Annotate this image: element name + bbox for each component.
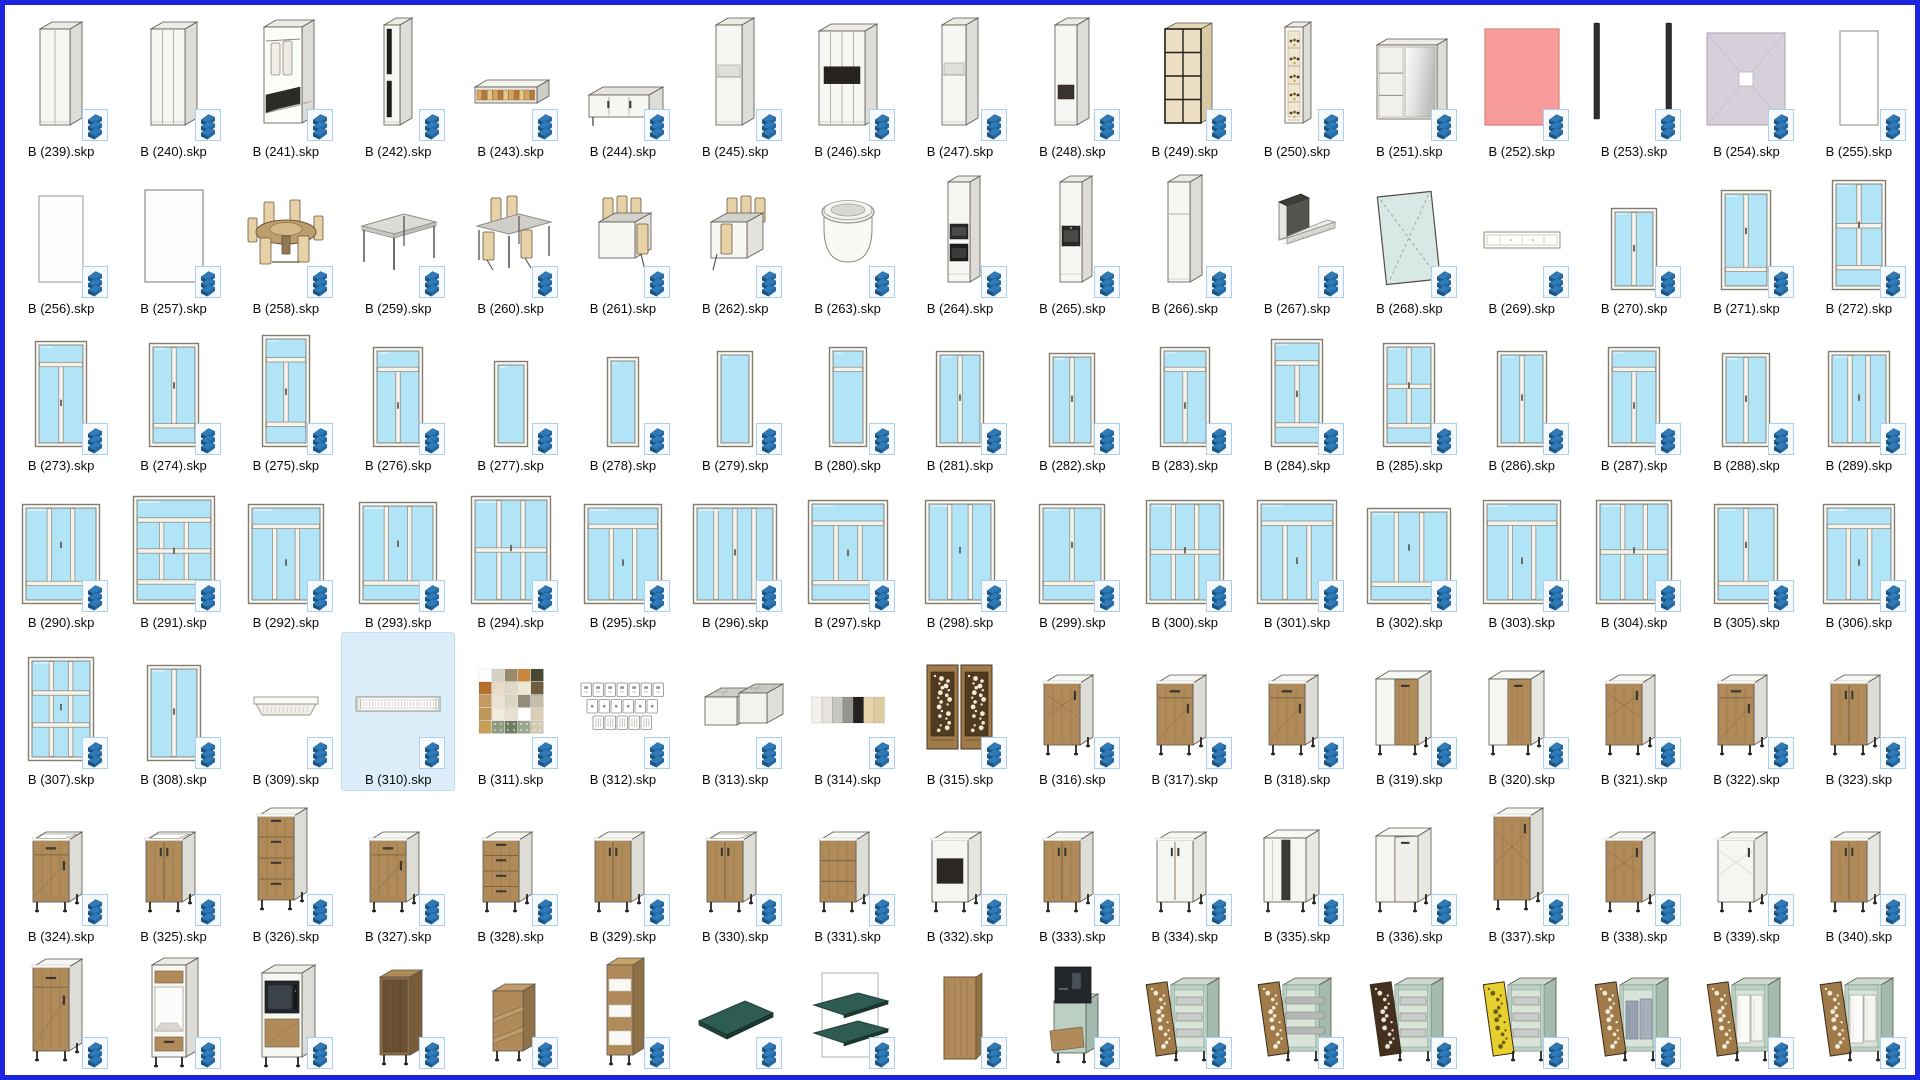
file-item[interactable]: B (262).skp — [679, 162, 791, 319]
file-item[interactable]: B (291).skp — [117, 476, 229, 633]
sketchup-badge-icon — [869, 109, 895, 141]
file-label: B (318).skp — [1241, 771, 1353, 788]
sketchup-badge-icon — [1768, 423, 1794, 455]
file-label: B (242).skp — [342, 143, 454, 160]
sketchup-badge-icon — [1880, 737, 1906, 769]
file-item[interactable]: B (253).skp — [1578, 5, 1690, 162]
file-label: B (309).skp — [230, 771, 342, 788]
file-item[interactable]: B (256).skp — [5, 162, 117, 319]
file-item[interactable]: B (321).skp — [1578, 633, 1690, 790]
file-item[interactable]: B (245).skp — [679, 5, 791, 162]
sketchup-badge-icon — [1206, 109, 1232, 141]
file-item[interactable]: B (307).skp — [5, 633, 117, 790]
sketchup-badge-icon — [644, 266, 670, 298]
sketchup-badge-icon — [195, 109, 221, 141]
file-item[interactable]: B (304).skp — [1578, 476, 1690, 633]
file-label: B (310).skp — [342, 771, 454, 788]
file-label: B (240).skp — [117, 143, 229, 160]
file-item[interactable] — [1016, 947, 1128, 1075]
file-label: B (277).skp — [454, 457, 566, 474]
sketchup-badge-icon — [1543, 423, 1569, 455]
file-item[interactable]: B (340).skp — [1803, 790, 1915, 947]
file-item[interactable]: B (259).skp — [342, 162, 454, 319]
file-item[interactable]: B (258).skp — [230, 162, 342, 319]
sketchup-badge-icon — [1543, 737, 1569, 769]
file-item[interactable]: B (283).skp — [1129, 319, 1241, 476]
sketchup-badge-icon — [1768, 109, 1794, 141]
file-label: B (335).skp — [1241, 928, 1353, 945]
sketchup-badge-icon — [82, 423, 108, 455]
file-item[interactable]: B (311).skp — [454, 633, 566, 790]
file-item[interactable]: B (314).skp — [791, 633, 903, 790]
sketchup-badge-icon — [1318, 266, 1344, 298]
sketchup-badge-icon — [1206, 1037, 1232, 1069]
file-item[interactable]: B (273).skp — [5, 319, 117, 476]
sketchup-badge-icon — [981, 1037, 1007, 1069]
file-label: B (246).skp — [791, 143, 903, 160]
grid-row: B (307).skpB (308).skpB (309).skpB (310)… — [5, 633, 1915, 790]
file-item[interactable]: B (286).skp — [1466, 319, 1578, 476]
sketchup-badge-icon — [1318, 423, 1344, 455]
sketchup-badge-icon — [1768, 737, 1794, 769]
file-item[interactable]: B (337).skp — [1466, 790, 1578, 947]
file-item[interactable]: B (318).skp — [1241, 633, 1353, 790]
file-label: B (317).skp — [1129, 771, 1241, 788]
file-item[interactable]: B (252).skp — [1466, 5, 1578, 162]
file-item[interactable]: B (239).skp — [5, 5, 117, 162]
file-item[interactable]: B (293).skp — [342, 476, 454, 633]
file-item[interactable]: B (280).skp — [791, 319, 903, 476]
file-item[interactable]: B (275).skp — [230, 319, 342, 476]
file-item[interactable]: B (246).skp — [791, 5, 903, 162]
file-item[interactable] — [5, 947, 117, 1075]
file-item[interactable]: B (298).skp — [904, 476, 1016, 633]
sketchup-badge-icon — [419, 894, 445, 926]
file-item[interactable]: B (319).skp — [1353, 633, 1465, 790]
file-item[interactable] — [1803, 947, 1915, 1075]
file-item[interactable] — [454, 947, 566, 1075]
file-label: B (263).skp — [791, 300, 903, 317]
file-item[interactable]: B (243).skp — [454, 5, 566, 162]
sketchup-badge-icon — [1655, 894, 1681, 926]
file-item[interactable]: B (303).skp — [1466, 476, 1578, 633]
file-item[interactable]: B (339).skp — [1690, 790, 1802, 947]
file-label: B (244).skp — [567, 143, 679, 160]
file-item[interactable]: B (248).skp — [1016, 5, 1128, 162]
sketchup-badge-icon — [307, 266, 333, 298]
file-item[interactable]: B (263).skp — [791, 162, 903, 319]
sketchup-badge-icon — [1880, 266, 1906, 298]
file-item[interactable]: B (320).skp — [1466, 633, 1578, 790]
sketchup-badge-icon — [1655, 423, 1681, 455]
sketchup-badge-icon — [1431, 1037, 1457, 1069]
file-label: B (290).skp — [5, 614, 117, 631]
sketchup-badge-icon — [981, 894, 1007, 926]
file-label: B (254).skp — [1690, 143, 1802, 160]
sketchup-badge-icon — [82, 109, 108, 141]
file-item[interactable]: B (268).skp — [1353, 162, 1465, 319]
sketchup-badge-icon — [644, 1037, 670, 1069]
file-item[interactable]: B (327).skp — [342, 790, 454, 947]
file-item[interactable]: B (295).skp — [567, 476, 679, 633]
sketchup-badge-icon — [644, 894, 670, 926]
file-item[interactable]: B (302).skp — [1353, 476, 1465, 633]
file-item[interactable]: B (267).skp — [1241, 162, 1353, 319]
file-label: B (340).skp — [1803, 928, 1915, 945]
sketchup-badge-icon — [1431, 737, 1457, 769]
sketchup-badge-icon — [419, 266, 445, 298]
file-item[interactable] — [679, 947, 791, 1075]
sketchup-badge-icon — [307, 109, 333, 141]
sketchup-badge-icon — [1431, 266, 1457, 298]
file-label: B (248).skp — [1016, 143, 1128, 160]
file-label: B (289).skp — [1803, 457, 1915, 474]
file-label: B (239).skp — [5, 143, 117, 160]
file-item[interactable]: B (240).skp — [117, 5, 229, 162]
file-label: B (284).skp — [1241, 457, 1353, 474]
file-label: B (333).skp — [1016, 928, 1128, 945]
sketchup-badge-icon — [756, 894, 782, 926]
sketchup-badge-icon — [981, 580, 1007, 612]
sketchup-badge-icon — [1768, 894, 1794, 926]
file-item[interactable]: B (297).skp — [791, 476, 903, 633]
file-item[interactable]: B (324).skp — [5, 790, 117, 947]
file-item[interactable]: B (323).skp — [1803, 633, 1915, 790]
sketchup-badge-icon — [756, 266, 782, 298]
file-item[interactable]: B (333).skp — [1016, 790, 1128, 947]
file-label: B (296).skp — [679, 614, 791, 631]
file-label: B (260).skp — [454, 300, 566, 317]
file-label: B (324).skp — [5, 928, 117, 945]
file-label: B (266).skp — [1129, 300, 1241, 317]
sketchup-badge-icon — [1880, 423, 1906, 455]
sketchup-badge-icon — [532, 737, 558, 769]
sketchup-badge-icon — [1206, 737, 1232, 769]
file-label: B (252).skp — [1466, 143, 1578, 160]
file-item[interactable]: B (282).skp — [1016, 319, 1128, 476]
file-label: B (279).skp — [679, 457, 791, 474]
sketchup-badge-icon — [307, 580, 333, 612]
sketchup-badge-icon — [756, 423, 782, 455]
file-label: B (328).skp — [454, 928, 566, 945]
file-item[interactable]: B (261).skp — [567, 162, 679, 319]
sketchup-badge-icon — [869, 423, 895, 455]
sketchup-badge-icon — [1768, 266, 1794, 298]
file-label: B (253).skp — [1578, 143, 1690, 160]
file-label: B (329).skp — [567, 928, 679, 945]
file-label: B (285).skp — [1353, 457, 1465, 474]
sketchup-badge-icon — [195, 580, 221, 612]
file-label: B (323).skp — [1803, 771, 1915, 788]
file-label: B (314).skp — [791, 771, 903, 788]
file-label: B (338).skp — [1578, 928, 1690, 945]
file-item[interactable] — [904, 947, 1016, 1075]
file-item[interactable]: B (241).skp — [230, 5, 342, 162]
file-label: B (327).skp — [342, 928, 454, 945]
file-item[interactable]: B (260).skp — [454, 162, 566, 319]
sketchup-badge-icon — [981, 737, 1007, 769]
file-item[interactable]: B (289).skp — [1803, 319, 1915, 476]
file-label: B (282).skp — [1016, 457, 1128, 474]
file-label: B (311).skp — [454, 771, 566, 788]
sketchup-badge-icon — [1768, 580, 1794, 612]
file-label: B (256).skp — [5, 300, 117, 317]
file-item[interactable]: B (309).skp — [230, 633, 342, 790]
file-item[interactable] — [1466, 947, 1578, 1075]
file-item[interactable]: B (290).skp — [5, 476, 117, 633]
sketchup-badge-icon — [307, 737, 333, 769]
sketchup-badge-icon — [644, 109, 670, 141]
file-label: B (261).skp — [567, 300, 679, 317]
file-item[interactable]: B (305).skp — [1690, 476, 1802, 633]
file-item[interactable]: B (249).skp — [1129, 5, 1241, 162]
file-item[interactable] — [1129, 947, 1241, 1075]
file-item[interactable]: B (285).skp — [1353, 319, 1465, 476]
file-label: B (313).skp — [679, 771, 791, 788]
sketchup-badge-icon — [82, 266, 108, 298]
file-item[interactable]: B (287).skp — [1578, 319, 1690, 476]
file-label: B (275).skp — [230, 457, 342, 474]
file-item[interactable]: B (294).skp — [454, 476, 566, 633]
grid-row: B (273).skpB (274).skpB (275).skpB (276)… — [5, 319, 1915, 476]
file-item[interactable] — [230, 947, 342, 1075]
sketchup-badge-icon — [532, 266, 558, 298]
sketchup-badge-icon — [307, 894, 333, 926]
sketchup-badge-icon — [869, 894, 895, 926]
sketchup-badge-icon — [1655, 737, 1681, 769]
file-label: B (298).skp — [904, 614, 1016, 631]
file-item[interactable]: B (276).skp — [342, 319, 454, 476]
sketchup-badge-icon — [82, 580, 108, 612]
file-item[interactable]: B (335).skp — [1241, 790, 1353, 947]
file-item[interactable]: B (301).skp — [1241, 476, 1353, 633]
sketchup-badge-icon — [1880, 580, 1906, 612]
file-label: B (265).skp — [1016, 300, 1128, 317]
file-item[interactable]: B (255).skp — [1803, 5, 1915, 162]
file-item[interactable]: B (334).skp — [1129, 790, 1241, 947]
sketchup-badge-icon — [1543, 1037, 1569, 1069]
file-label: B (315).skp — [904, 771, 1016, 788]
sketchup-badge-icon — [195, 266, 221, 298]
file-label: B (299).skp — [1016, 614, 1128, 631]
sketchup-badge-icon — [1543, 266, 1569, 298]
file-item[interactable]: B (315).skp — [904, 633, 1016, 790]
file-item[interactable]: B (284).skp — [1241, 319, 1353, 476]
file-item[interactable]: B (310).skp — [342, 633, 454, 790]
file-label: B (294).skp — [454, 614, 566, 631]
file-label: B (274).skp — [117, 457, 229, 474]
sketchup-badge-icon — [981, 423, 1007, 455]
file-item[interactable]: B (300).skp — [1129, 476, 1241, 633]
sketchup-badge-icon — [195, 737, 221, 769]
file-label: B (305).skp — [1690, 614, 1802, 631]
sketchup-badge-icon — [1206, 894, 1232, 926]
sketchup-badge-icon — [1655, 109, 1681, 141]
sketchup-badge-icon — [756, 737, 782, 769]
file-item[interactable]: B (250).skp — [1241, 5, 1353, 162]
sketchup-badge-icon — [1431, 423, 1457, 455]
file-label: B (302).skp — [1353, 614, 1465, 631]
file-item[interactable] — [1353, 947, 1465, 1075]
file-item[interactable]: B (328).skp — [454, 790, 566, 947]
file-label: B (337).skp — [1466, 928, 1578, 945]
file-label: B (269).skp — [1466, 300, 1578, 317]
sketchup-badge-icon — [1655, 580, 1681, 612]
file-item[interactable]: B (325).skp — [117, 790, 229, 947]
file-item[interactable] — [791, 947, 903, 1075]
sketchup-badge-icon — [1880, 894, 1906, 926]
file-item[interactable]: B (316).skp — [1016, 633, 1128, 790]
sketchup-badge-icon — [1655, 266, 1681, 298]
file-item[interactable] — [567, 947, 679, 1075]
file-item[interactable]: B (279).skp — [679, 319, 791, 476]
file-item[interactable] — [117, 947, 229, 1075]
file-item[interactable]: B (277).skp — [454, 319, 566, 476]
file-item[interactable]: B (278).skp — [567, 319, 679, 476]
file-item[interactable]: B (242).skp — [342, 5, 454, 162]
file-item[interactable]: B (322).skp — [1690, 633, 1802, 790]
file-item[interactable]: B (251).skp — [1353, 5, 1465, 162]
sketchup-badge-icon — [1318, 580, 1344, 612]
sketchup-badge-icon — [1318, 894, 1344, 926]
file-item[interactable]: B (272).skp — [1803, 162, 1915, 319]
file-label: B (258).skp — [230, 300, 342, 317]
sketchup-badge-icon — [1543, 109, 1569, 141]
file-label: B (300).skp — [1129, 614, 1241, 631]
sketchup-badge-icon — [1318, 109, 1344, 141]
sketchup-badge-icon — [1094, 1037, 1120, 1069]
sketchup-badge-icon — [1206, 266, 1232, 298]
grid-row: B (239).skpB (240).skpB (241).skpB (242)… — [5, 5, 1915, 162]
file-label: B (267).skp — [1241, 300, 1353, 317]
file-item[interactable]: B (270).skp — [1578, 162, 1690, 319]
file-item[interactable] — [1241, 947, 1353, 1075]
file-item[interactable]: B (265).skp — [1016, 162, 1128, 319]
file-label: B (331).skp — [791, 928, 903, 945]
file-item[interactable]: B (264).skp — [904, 162, 1016, 319]
sketchup-badge-icon — [532, 109, 558, 141]
file-item[interactable]: B (308).skp — [117, 633, 229, 790]
file-label: B (262).skp — [679, 300, 791, 317]
file-label: B (319).skp — [1353, 771, 1465, 788]
file-label: B (245).skp — [679, 143, 791, 160]
file-label: B (250).skp — [1241, 143, 1353, 160]
file-label: B (291).skp — [117, 614, 229, 631]
file-label: B (295).skp — [567, 614, 679, 631]
grid-row: B (324).skpB (325).skpB (326).skpB (327)… — [5, 790, 1915, 947]
sketchup-badge-icon — [419, 1037, 445, 1069]
sketchup-badge-icon — [1318, 1037, 1344, 1069]
file-label: B (330).skp — [679, 928, 791, 945]
sketchup-badge-icon — [419, 737, 445, 769]
sketchup-badge-icon — [307, 1037, 333, 1069]
file-label: B (288).skp — [1690, 457, 1802, 474]
file-label: B (293).skp — [342, 614, 454, 631]
file-item[interactable]: B (338).skp — [1578, 790, 1690, 947]
file-label: B (336).skp — [1353, 928, 1465, 945]
file-item[interactable]: B (288).skp — [1690, 319, 1802, 476]
sketchup-badge-icon — [419, 109, 445, 141]
file-item[interactable]: B (296).skp — [679, 476, 791, 633]
sketchup-badge-icon — [869, 266, 895, 298]
sketchup-badge-icon — [1431, 580, 1457, 612]
file-item[interactable]: B (257).skp — [117, 162, 229, 319]
file-label: B (264).skp — [904, 300, 1016, 317]
file-label: B (283).skp — [1129, 457, 1241, 474]
sketchup-badge-icon — [82, 1037, 108, 1069]
file-label: B (304).skp — [1578, 614, 1690, 631]
file-label: B (278).skp — [567, 457, 679, 474]
grid-row — [5, 947, 1915, 1075]
file-item[interactable]: B (269).skp — [1466, 162, 1578, 319]
sketchup-badge-icon — [532, 894, 558, 926]
file-label: B (259).skp — [342, 300, 454, 317]
file-item[interactable]: B (266).skp — [1129, 162, 1241, 319]
file-item[interactable]: B (274).skp — [117, 319, 229, 476]
file-label: B (272).skp — [1803, 300, 1915, 317]
file-item[interactable]: B (244).skp — [567, 5, 679, 162]
file-label: B (326).skp — [230, 928, 342, 945]
file-label: B (303).skp — [1466, 614, 1578, 631]
sketchup-badge-icon — [981, 266, 1007, 298]
file-item[interactable]: B (332).skp — [904, 790, 1016, 947]
file-label: B (292).skp — [230, 614, 342, 631]
sketchup-badge-icon — [1543, 894, 1569, 926]
file-item[interactable] — [1690, 947, 1802, 1075]
file-item[interactable]: B (247).skp — [904, 5, 1016, 162]
file-label: B (243).skp — [454, 143, 566, 160]
file-label: B (276).skp — [342, 457, 454, 474]
file-label: B (271).skp — [1690, 300, 1802, 317]
sketchup-badge-icon — [195, 894, 221, 926]
sketchup-badge-icon — [756, 1037, 782, 1069]
file-label: B (307).skp — [5, 771, 117, 788]
file-item[interactable]: B (271).skp — [1690, 162, 1802, 319]
file-label: B (312).skp — [567, 771, 679, 788]
file-item[interactable] — [1578, 947, 1690, 1075]
sketchup-badge-icon — [532, 1037, 558, 1069]
file-label: B (247).skp — [904, 143, 1016, 160]
sketchup-badge-icon — [644, 423, 670, 455]
file-item[interactable]: B (330).skp — [679, 790, 791, 947]
file-item[interactable]: B (312).skp — [567, 633, 679, 790]
file-item[interactable]: B (292).skp — [230, 476, 342, 633]
file-item[interactable]: B (336).skp — [1353, 790, 1465, 947]
sketchup-badge-icon — [1880, 109, 1906, 141]
file-item[interactable]: B (331).skp — [791, 790, 903, 947]
file-manager-window: B (239).skpB (240).skpB (241).skpB (242)… — [0, 0, 1920, 1080]
sketchup-badge-icon — [532, 423, 558, 455]
file-item[interactable]: B (326).skp — [230, 790, 342, 947]
sketchup-badge-icon — [195, 1037, 221, 1069]
sketchup-badge-icon — [1543, 580, 1569, 612]
file-item[interactable]: B (281).skp — [904, 319, 1016, 476]
file-item[interactable]: B (254).skp — [1690, 5, 1802, 162]
file-item[interactable]: B (317).skp — [1129, 633, 1241, 790]
sketchup-badge-icon — [1094, 737, 1120, 769]
file-item[interactable]: B (306).skp — [1803, 476, 1915, 633]
file-label: B (339).skp — [1690, 928, 1802, 945]
file-item[interactable]: B (313).skp — [679, 633, 791, 790]
grid-row: B (290).skpB (291).skpB (292).skpB (293)… — [5, 476, 1915, 633]
file-item[interactable] — [342, 947, 454, 1075]
sketchup-badge-icon — [981, 109, 1007, 141]
file-label: B (257).skp — [117, 300, 229, 317]
file-item[interactable]: B (299).skp — [1016, 476, 1128, 633]
file-label: B (316).skp — [1016, 771, 1128, 788]
file-item[interactable]: B (329).skp — [567, 790, 679, 947]
file-label: B (251).skp — [1353, 143, 1465, 160]
